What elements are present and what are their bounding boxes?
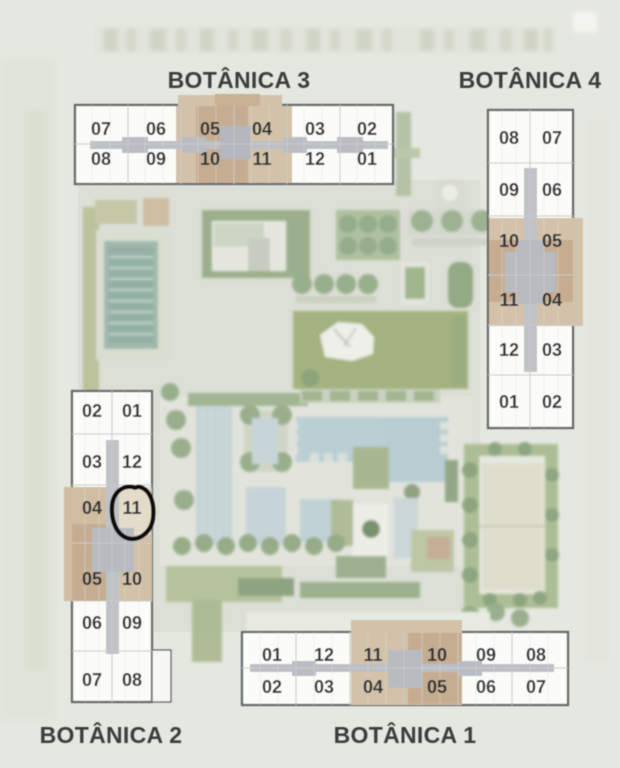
- svg-text:11: 11: [252, 149, 271, 169]
- svg-text:12: 12: [499, 340, 519, 360]
- svg-text:09: 09: [146, 149, 166, 169]
- svg-text:06: 06: [82, 613, 102, 633]
- svg-text:07: 07: [542, 128, 562, 148]
- svg-text:09: 09: [499, 180, 519, 200]
- svg-text:03: 03: [305, 119, 325, 139]
- svg-text:03: 03: [542, 340, 562, 360]
- svg-text:08: 08: [499, 128, 519, 148]
- svg-text:05: 05: [200, 119, 220, 139]
- svg-text:09: 09: [122, 613, 142, 633]
- svg-text:05: 05: [427, 677, 447, 697]
- svg-text:04: 04: [252, 119, 272, 139]
- svg-text:03: 03: [314, 677, 334, 697]
- svg-text:08: 08: [91, 149, 111, 169]
- svg-text:03: 03: [82, 452, 102, 472]
- svg-text:02: 02: [82, 401, 102, 421]
- svg-text:02: 02: [542, 392, 562, 412]
- svg-text:09: 09: [476, 645, 496, 665]
- svg-text:12: 12: [122, 452, 142, 472]
- svg-text:11: 11: [122, 498, 141, 518]
- svg-text:07: 07: [82, 670, 102, 690]
- svg-text:01: 01: [499, 392, 519, 412]
- svg-text:10: 10: [200, 149, 220, 169]
- svg-text:05: 05: [542, 231, 562, 251]
- svg-text:06: 06: [146, 119, 166, 139]
- svg-text:10: 10: [122, 569, 142, 589]
- svg-text:BOTÂNICA 2: BOTÂNICA 2: [40, 721, 183, 748]
- svg-text:06: 06: [542, 180, 562, 200]
- svg-text:BOTÂNICA 4: BOTÂNICA 4: [459, 66, 602, 93]
- svg-text:BOTÂNICA 1: BOTÂNICA 1: [334, 721, 477, 748]
- svg-text:07: 07: [91, 119, 111, 139]
- svg-text:01: 01: [262, 645, 282, 665]
- svg-text:08: 08: [122, 670, 142, 690]
- svg-text:08: 08: [526, 645, 546, 665]
- svg-text:12: 12: [314, 645, 334, 665]
- svg-text:07: 07: [526, 677, 546, 697]
- svg-text:12: 12: [305, 149, 325, 169]
- svg-text:04: 04: [82, 498, 102, 518]
- svg-text:04: 04: [363, 677, 383, 697]
- svg-text:02: 02: [262, 677, 282, 697]
- svg-text:04: 04: [542, 290, 562, 310]
- svg-text:10: 10: [499, 231, 519, 251]
- svg-text:10: 10: [427, 645, 447, 665]
- svg-text:01: 01: [357, 149, 377, 169]
- svg-text:11: 11: [363, 645, 382, 665]
- svg-text:11: 11: [499, 290, 518, 310]
- svg-text:05: 05: [82, 569, 102, 589]
- svg-text:BOTÂNICA 3: BOTÂNICA 3: [168, 66, 311, 93]
- svg-text:01: 01: [122, 401, 142, 421]
- svg-text:06: 06: [476, 677, 496, 697]
- svg-text:02: 02: [357, 119, 377, 139]
